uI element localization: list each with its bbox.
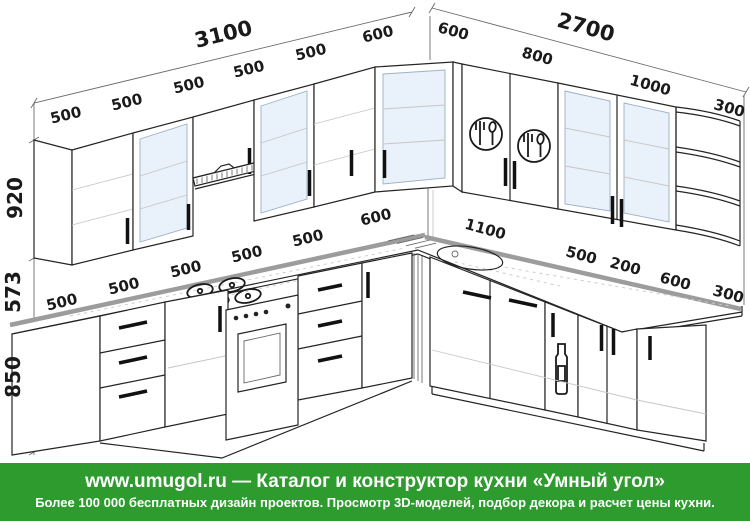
dim-right-base-3: 200 [608,253,643,279]
oven-icon [226,295,298,440]
corner-wall-cabinet [375,62,462,192]
corner-open-shelf-icon [676,107,740,246]
dim-left-wall-1: 500 [49,103,84,128]
dim-left-base-3: 500 [169,257,204,282]
dim-left-base-5: 500 [291,226,326,251]
dim-wall-cabinet-height: 920 [3,177,27,219]
dim-right-wall-2: 800 [520,43,555,69]
dim-left-wall-4: 500 [232,57,267,82]
dim-right-wall-3: 1000 [628,71,673,100]
promo-footer: www.umugol.ru — Каталог и конструктор ку… [0,463,750,521]
dim-right-base-2: 500 [564,242,599,268]
dim-right-wall-4: 300 [712,95,747,121]
wall-cabinets-right [462,64,740,246]
site-title: www.umugol.ru — Каталог и конструктор ку… [0,463,750,493]
kitchen-catalog-banner: 3100 2700 500 500 500 500 500 600 600 80… [0,0,750,521]
dim-right-base-1: 1100 [463,215,508,244]
dim-right-wall-1: 600 [436,18,471,44]
base-side-panel [12,316,100,455]
wall-cabinets-left [34,62,462,265]
dim-left-base-4: 500 [230,242,265,267]
dim-left-wall-5: 500 [294,40,329,65]
dim-left-wall-3: 500 [172,73,207,98]
dim-left-wall-2: 500 [110,90,145,115]
dim-left-base-6: 600 [359,205,394,230]
dim-left-wall-6: 600 [361,22,396,47]
wall-cabinet-side-panel [34,140,72,265]
dim-left-total: 3100 [192,16,254,53]
dim-base-height: 850 [1,356,25,398]
site-tagline: Более 100 000 бесплатных дизайн проектов… [0,493,750,511]
kitchen-perspective-drawing: 3100 2700 500 500 500 500 500 600 600 80… [0,0,750,463]
dim-apron-height: 573 [1,271,25,313]
dim-left-base-2: 500 [107,274,142,299]
dim-right-total: 2700 [555,8,618,47]
